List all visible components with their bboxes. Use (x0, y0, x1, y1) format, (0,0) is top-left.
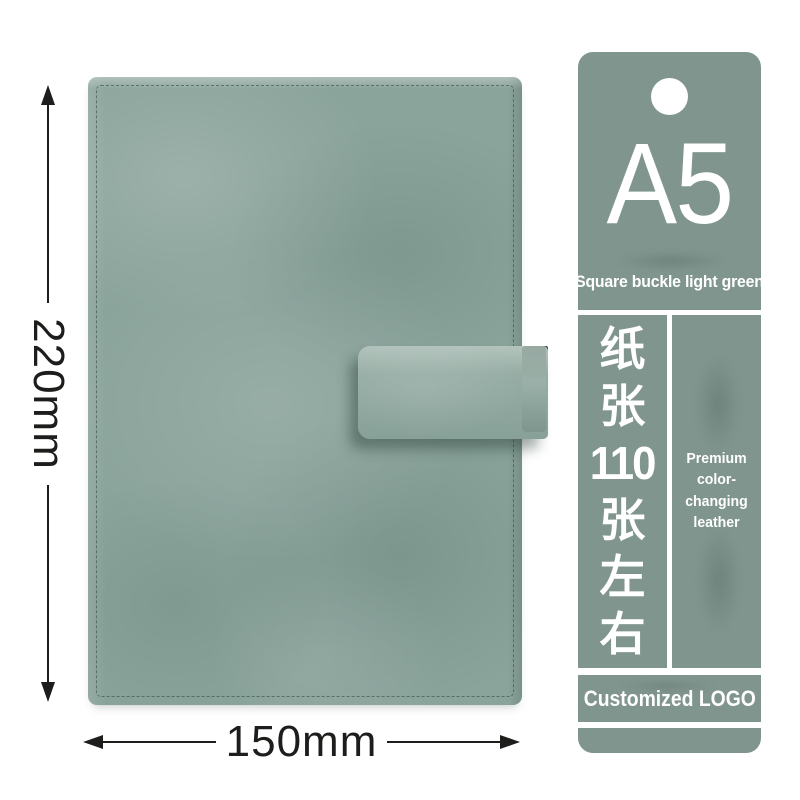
watermark (596, 248, 746, 274)
height-label: 220mm (26, 303, 70, 485)
hang-hole (651, 78, 688, 115)
paper-spec-char: 纸 (600, 326, 646, 372)
watermark (602, 679, 732, 693)
material-text: Premium color- changing leather (673, 449, 759, 533)
dimension-line (47, 105, 49, 303)
paper-spec-char: 张 (600, 497, 646, 543)
material-line: Premium color- (673, 449, 759, 491)
height-dimension: 220mm (26, 85, 70, 702)
arrow-left-icon (83, 735, 103, 749)
tag-subtitle: Square buckle light green (578, 272, 761, 292)
product-image: 220mm 150mm A5 Square buckle light green… (0, 0, 800, 800)
material-line: changing (673, 492, 759, 513)
dimension-line (387, 741, 500, 743)
paper-spec-count: 110 (590, 440, 655, 486)
arrow-up-icon (41, 85, 55, 105)
size-label: A5 (607, 137, 733, 231)
arrow-right-icon (500, 735, 520, 749)
tag-header: A5 Square buckle light green (578, 52, 761, 310)
logo-band: Customized LOGO (578, 675, 761, 722)
paper-spec-column: 纸 张 110 张 左 右 (578, 315, 667, 668)
width-dimension: 150mm (83, 720, 520, 764)
width-label: 150mm (216, 717, 388, 767)
notebook-cover (88, 77, 522, 705)
strap-buckle (358, 346, 548, 439)
paper-spec-char: 张 (600, 383, 646, 429)
paper-spec-char: 右 (600, 611, 646, 657)
tag-columns: 纸 张 110 张 左 右 Premium color- changing le… (578, 315, 761, 668)
arrow-down-icon (41, 682, 55, 702)
height-label-text: 220mm (23, 318, 73, 470)
dimension-line (103, 741, 216, 743)
dimension-line (47, 485, 49, 683)
hang-tag: A5 Square buckle light green 纸 张 110 张 左… (578, 52, 761, 753)
tag-footer (578, 728, 761, 753)
material-line: leather (673, 513, 759, 534)
paper-spec-char: 左 (600, 554, 646, 600)
material-column: Premium color- changing leather (672, 315, 761, 668)
